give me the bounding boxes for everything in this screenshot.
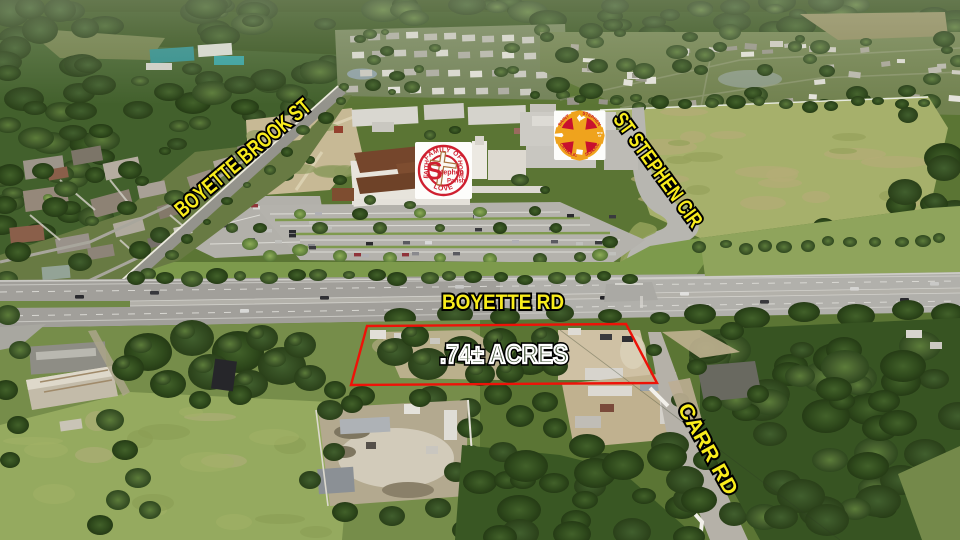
svg-text:BOYETTE RD: BOYETTE RD — [442, 291, 564, 314]
svg-text:Parish: Parish — [447, 179, 466, 185]
svg-text:tephen: tephen — [441, 170, 464, 177]
svg-text:ST: ST — [598, 134, 602, 138]
svg-text:.74± ACRES: .74± ACRES — [440, 339, 568, 369]
